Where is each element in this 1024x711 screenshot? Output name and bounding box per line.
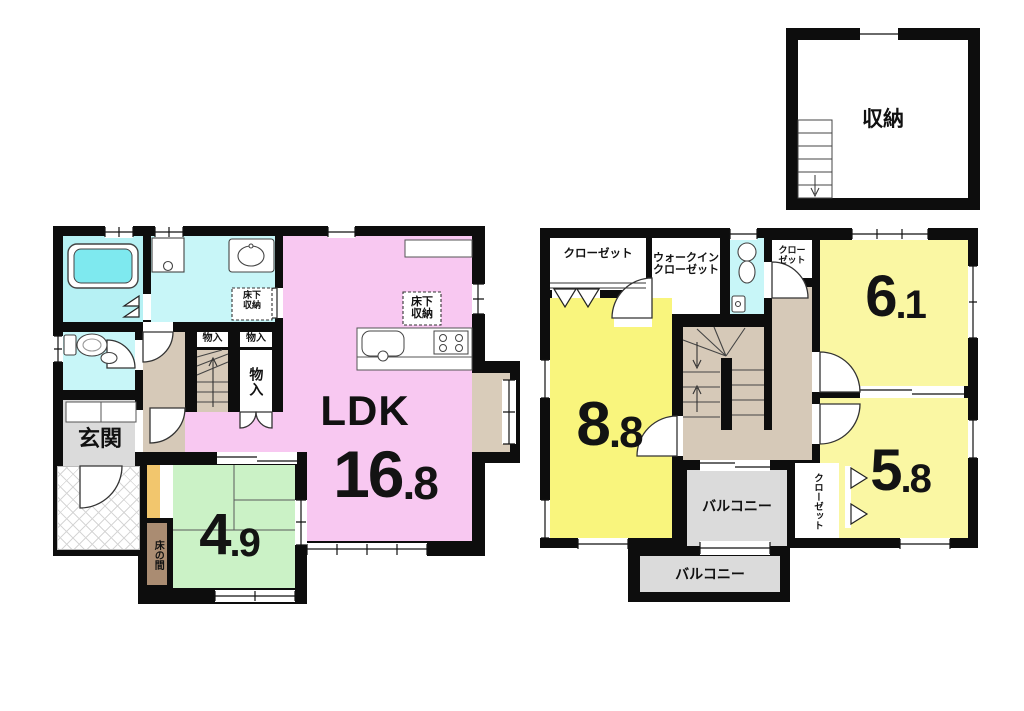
- walkin-closet-label: ウォークイン クローゼット: [648, 252, 724, 276]
- ldk-size-dec: .8: [403, 456, 437, 512]
- closet-top-label: クローゼット: [552, 246, 644, 262]
- closet-small-line2: ゼット: [772, 256, 812, 266]
- washitsu-size: 4 .9: [168, 498, 290, 568]
- underfloor-storage-washroom-label: 床下 収納: [232, 291, 272, 311]
- stairs-1f: [197, 350, 228, 412]
- underfloor-kitchen-line1: 床下: [403, 296, 441, 308]
- floor-plan-canvas: LDK 16 .8 4 .9 玄関 床の間 物入 物入 物入 床下 収納 床下 …: [0, 0, 1024, 711]
- monoire-small-2-label: 物入: [240, 333, 272, 346]
- bedroom-88-main: 8: [576, 389, 608, 460]
- closet-58-label: クローゼット: [806, 468, 828, 534]
- genkan-label: 玄関: [66, 424, 134, 454]
- monoire-large-label: 物入: [244, 356, 268, 408]
- tokonoma-shelf: [147, 465, 160, 518]
- balcony-2-label: バルコニー: [642, 564, 778, 584]
- tokonoma-label: 床の間: [148, 527, 166, 582]
- monoire-small-1-label: 物入: [197, 333, 228, 346]
- bedroom-88-dec: .8: [609, 408, 642, 460]
- ldk-label: LDK: [305, 388, 425, 434]
- bedroom-58-main: 5: [870, 437, 900, 504]
- entrance-porch: [57, 466, 140, 550]
- walkin-closet-line1: ウォークイン: [648, 252, 724, 264]
- ldk-bay-window-nook: [472, 373, 510, 452]
- toilet-room-2f: [730, 238, 764, 314]
- bedroom-61-size: 6 .1: [830, 258, 960, 330]
- attic-storage-label: 収納: [848, 106, 918, 134]
- bedroom-58-dec: .8: [900, 457, 929, 504]
- bathroom: [63, 236, 143, 322]
- ldk-size: 16 .8: [300, 432, 470, 512]
- bedroom-61-dec: .1: [895, 283, 924, 330]
- hallway-2f-lower: [683, 430, 812, 460]
- bedroom-88-size: 8 .8: [545, 385, 673, 460]
- stairs-2f: [683, 327, 764, 430]
- washitsu-size-main: 4: [199, 501, 229, 568]
- ldk-room-west: [185, 412, 283, 452]
- balcony-1-label: バルコニー: [689, 496, 785, 516]
- toilet-room-1f: [63, 332, 135, 390]
- underfloor-washroom-line2: 収納: [232, 301, 272, 311]
- bedroom-58-size: 5 .8: [835, 432, 965, 504]
- underfloor-storage-kitchen-label: 床下 収納: [403, 296, 441, 320]
- bedroom-61-main: 6: [865, 263, 895, 330]
- underfloor-kitchen-line2: 収納: [403, 308, 441, 320]
- hallway-1f: [143, 332, 185, 452]
- ldk-size-main: 16: [333, 436, 402, 512]
- closet-small-label: クロー ゼット: [772, 246, 812, 266]
- walkin-closet-line2: クローゼット: [648, 264, 724, 276]
- washitsu-size-dec: .9: [229, 521, 258, 568]
